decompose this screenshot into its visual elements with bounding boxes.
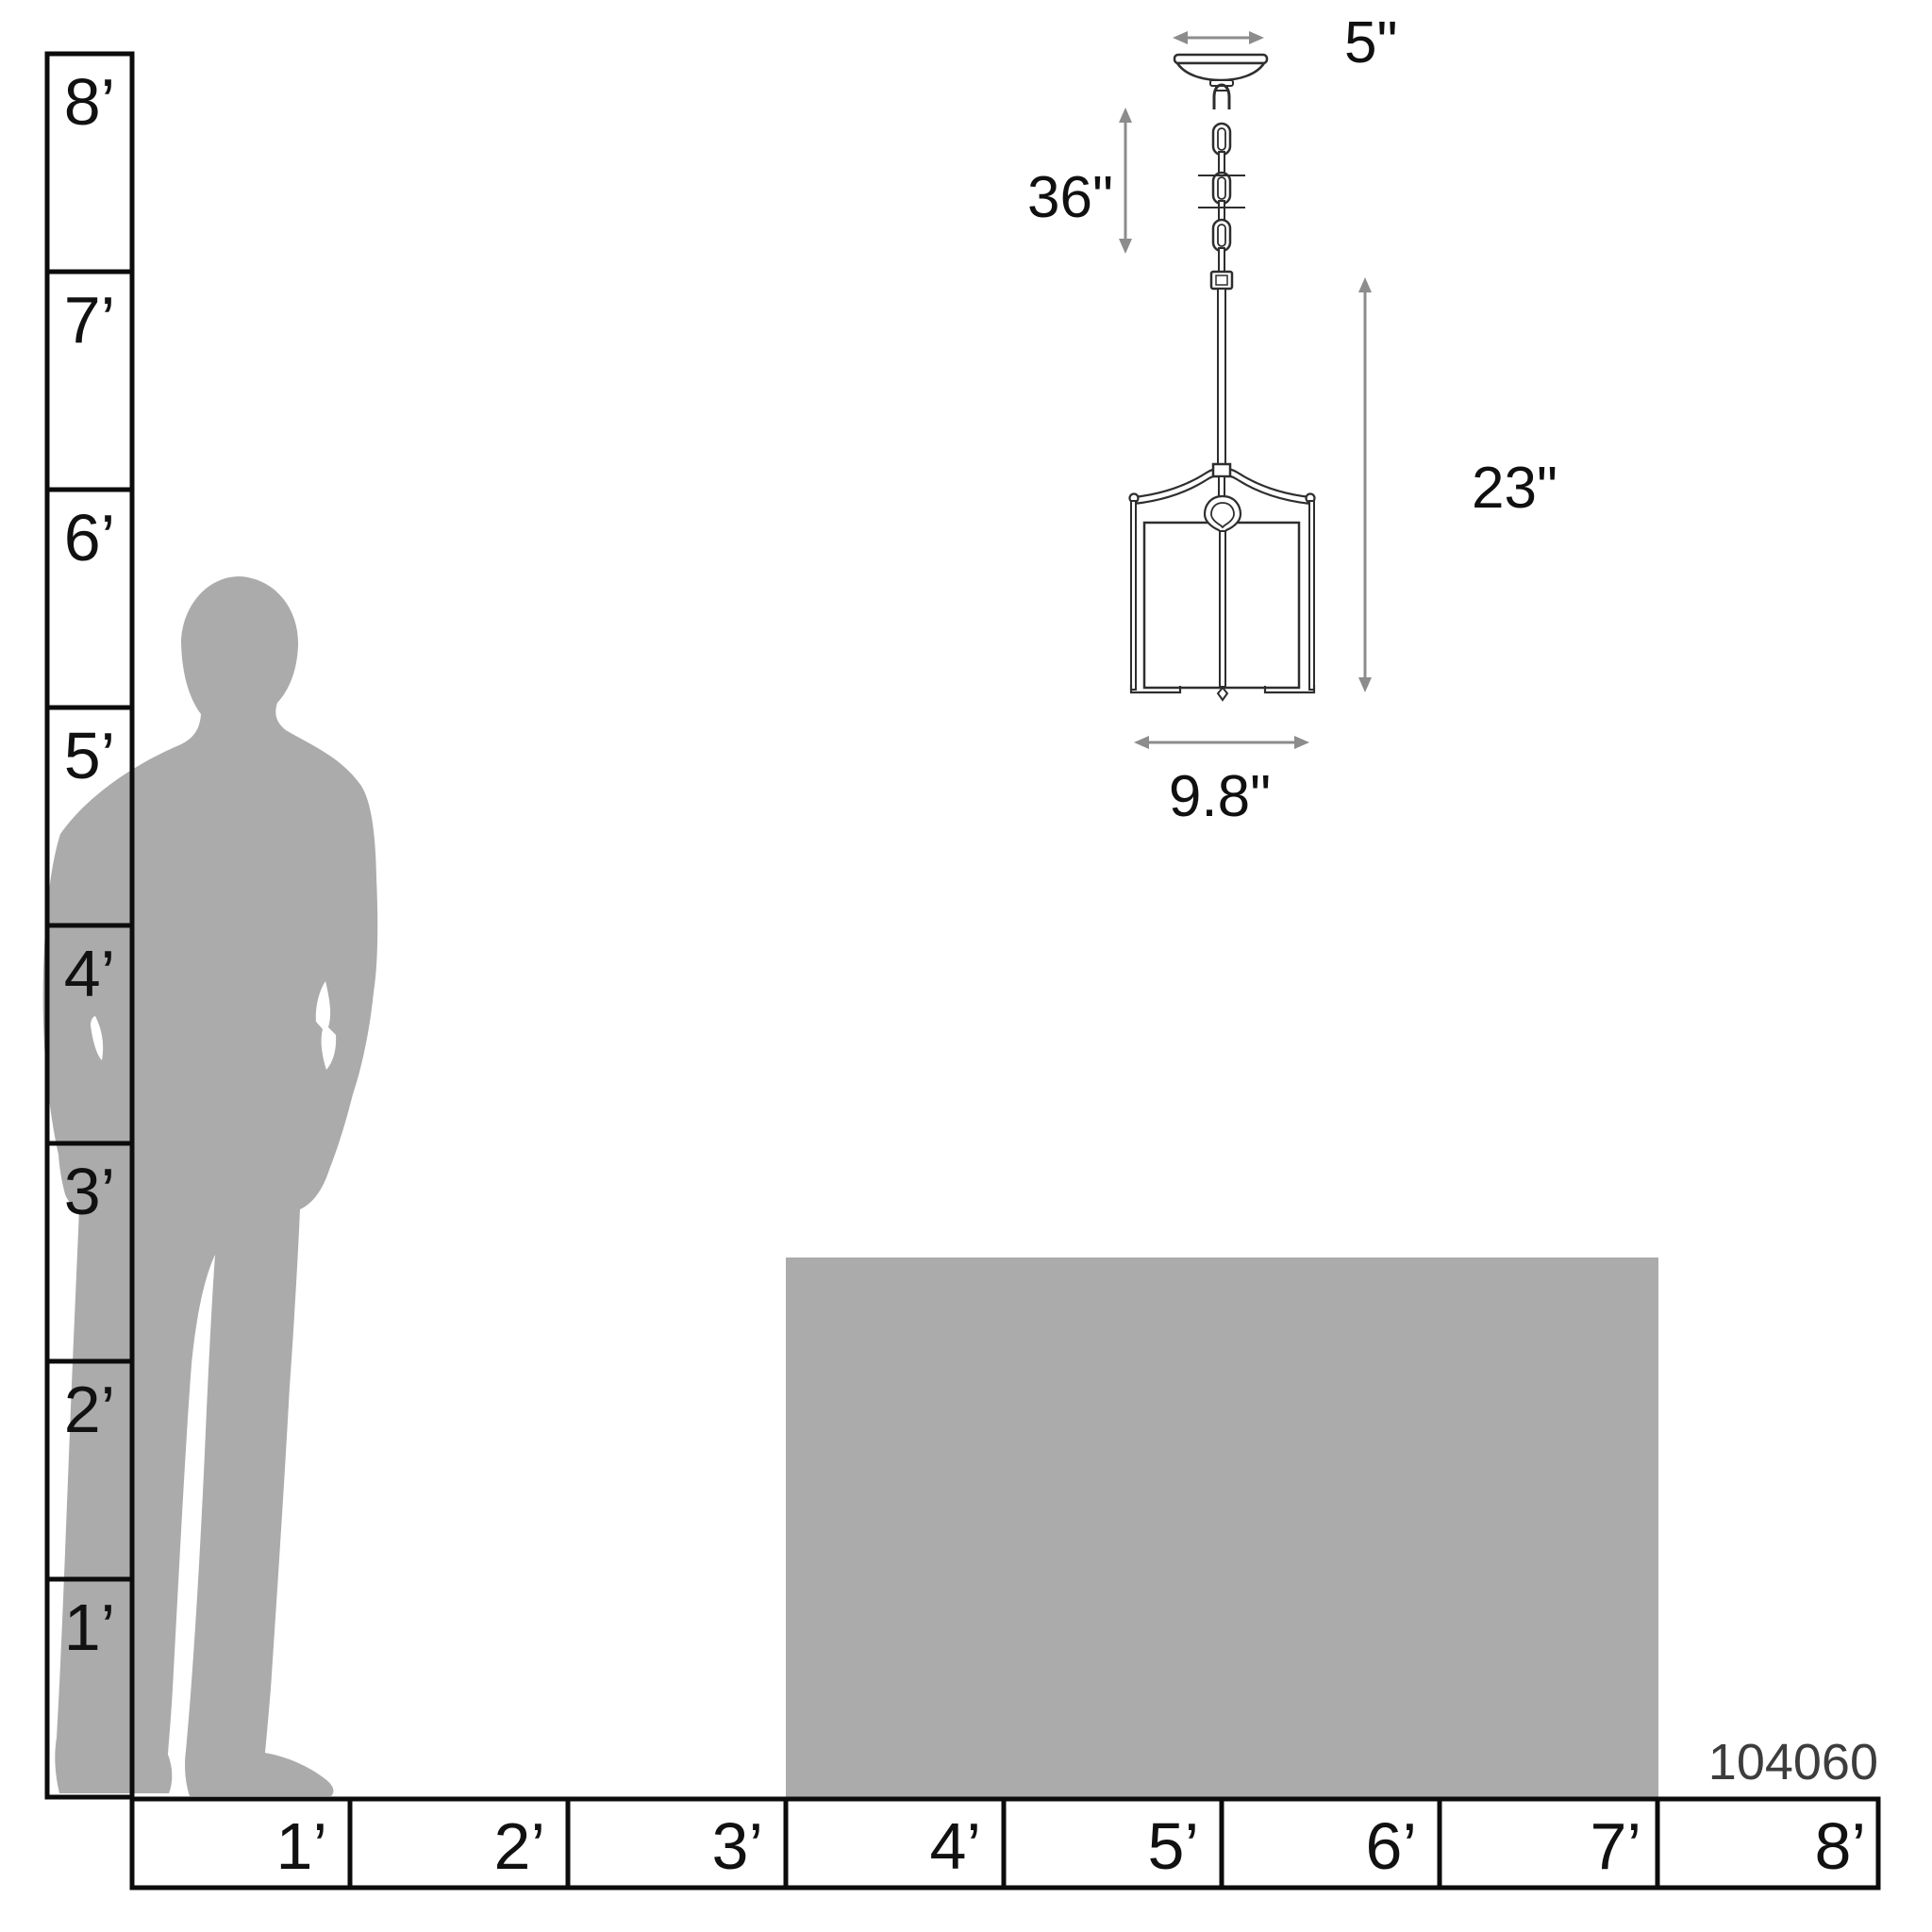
fixture-height-label: 23" bbox=[1472, 459, 1557, 518]
height-ruler-label-6ft: 6’ bbox=[47, 505, 132, 571]
width-ruler-label-6ft: 6’ bbox=[1222, 1813, 1417, 1879]
table-rect bbox=[786, 1257, 1658, 1799]
diagram-canvas bbox=[0, 0, 1932, 1932]
height-ruler-label-1ft: 1’ bbox=[47, 1594, 132, 1660]
width-ruler-label-7ft: 7’ bbox=[1440, 1813, 1641, 1879]
chain-length-label: 36" bbox=[962, 169, 1113, 227]
chain-links bbox=[1213, 124, 1230, 273]
scale-diagram: 8’ 7’ 6’ 5’ 4’ 3’ 2’ 1’ 1’ 2’ 3’ 4’ 5’ 6… bbox=[0, 0, 1932, 1932]
fixture-width-label: 9.8" bbox=[1144, 768, 1295, 826]
width-ruler-label-3ft: 3’ bbox=[568, 1813, 763, 1879]
arrow-head-up bbox=[1358, 277, 1372, 292]
height-ruler-label-7ft: 7’ bbox=[47, 287, 132, 353]
arrow-head-right bbox=[1294, 736, 1309, 749]
arrow-head-left bbox=[1173, 31, 1188, 44]
canopy-width-label: 5" bbox=[1344, 14, 1398, 73]
rod-fitting bbox=[1213, 464, 1230, 476]
width-ruler-label-4ft: 4’ bbox=[786, 1813, 981, 1879]
height-ruler-label-4ft: 4’ bbox=[47, 941, 132, 1007]
height-ruler-label-5ft: 5’ bbox=[47, 723, 132, 789]
chain-coupler bbox=[1211, 272, 1232, 289]
width-ruler-label-5ft: 5’ bbox=[1004, 1813, 1199, 1879]
bottom-finial bbox=[1218, 688, 1227, 700]
center-rod bbox=[1220, 531, 1225, 687]
table-block bbox=[786, 1257, 1658, 1799]
pendant-drawing bbox=[1130, 55, 1315, 700]
height-ruler-label-3ft: 3’ bbox=[47, 1158, 132, 1224]
arrow-head-up bbox=[1119, 108, 1132, 123]
product-code: 104060 bbox=[1642, 1737, 1878, 1788]
canopy-plate bbox=[1174, 55, 1267, 63]
chain-connector bbox=[1219, 248, 1224, 273]
arrow-head-down bbox=[1119, 239, 1132, 254]
height-ruler-label-8ft: 8’ bbox=[47, 69, 132, 135]
arrow-head-down bbox=[1358, 677, 1372, 692]
width-ruler-label-1ft: 1’ bbox=[132, 1813, 327, 1879]
height-ruler-label-2ft: 2’ bbox=[47, 1376, 132, 1442]
width-ruler-label-8ft: 8’ bbox=[1657, 1813, 1866, 1879]
frame-post-left bbox=[1131, 501, 1136, 690]
width-ruler-label-2ft: 2’ bbox=[350, 1813, 545, 1879]
arrow-head-left bbox=[1134, 736, 1149, 749]
arrow-head-right bbox=[1249, 31, 1264, 44]
canopy-dome bbox=[1177, 63, 1264, 80]
hang-rod bbox=[1218, 289, 1225, 468]
frame-post-right bbox=[1309, 501, 1314, 690]
